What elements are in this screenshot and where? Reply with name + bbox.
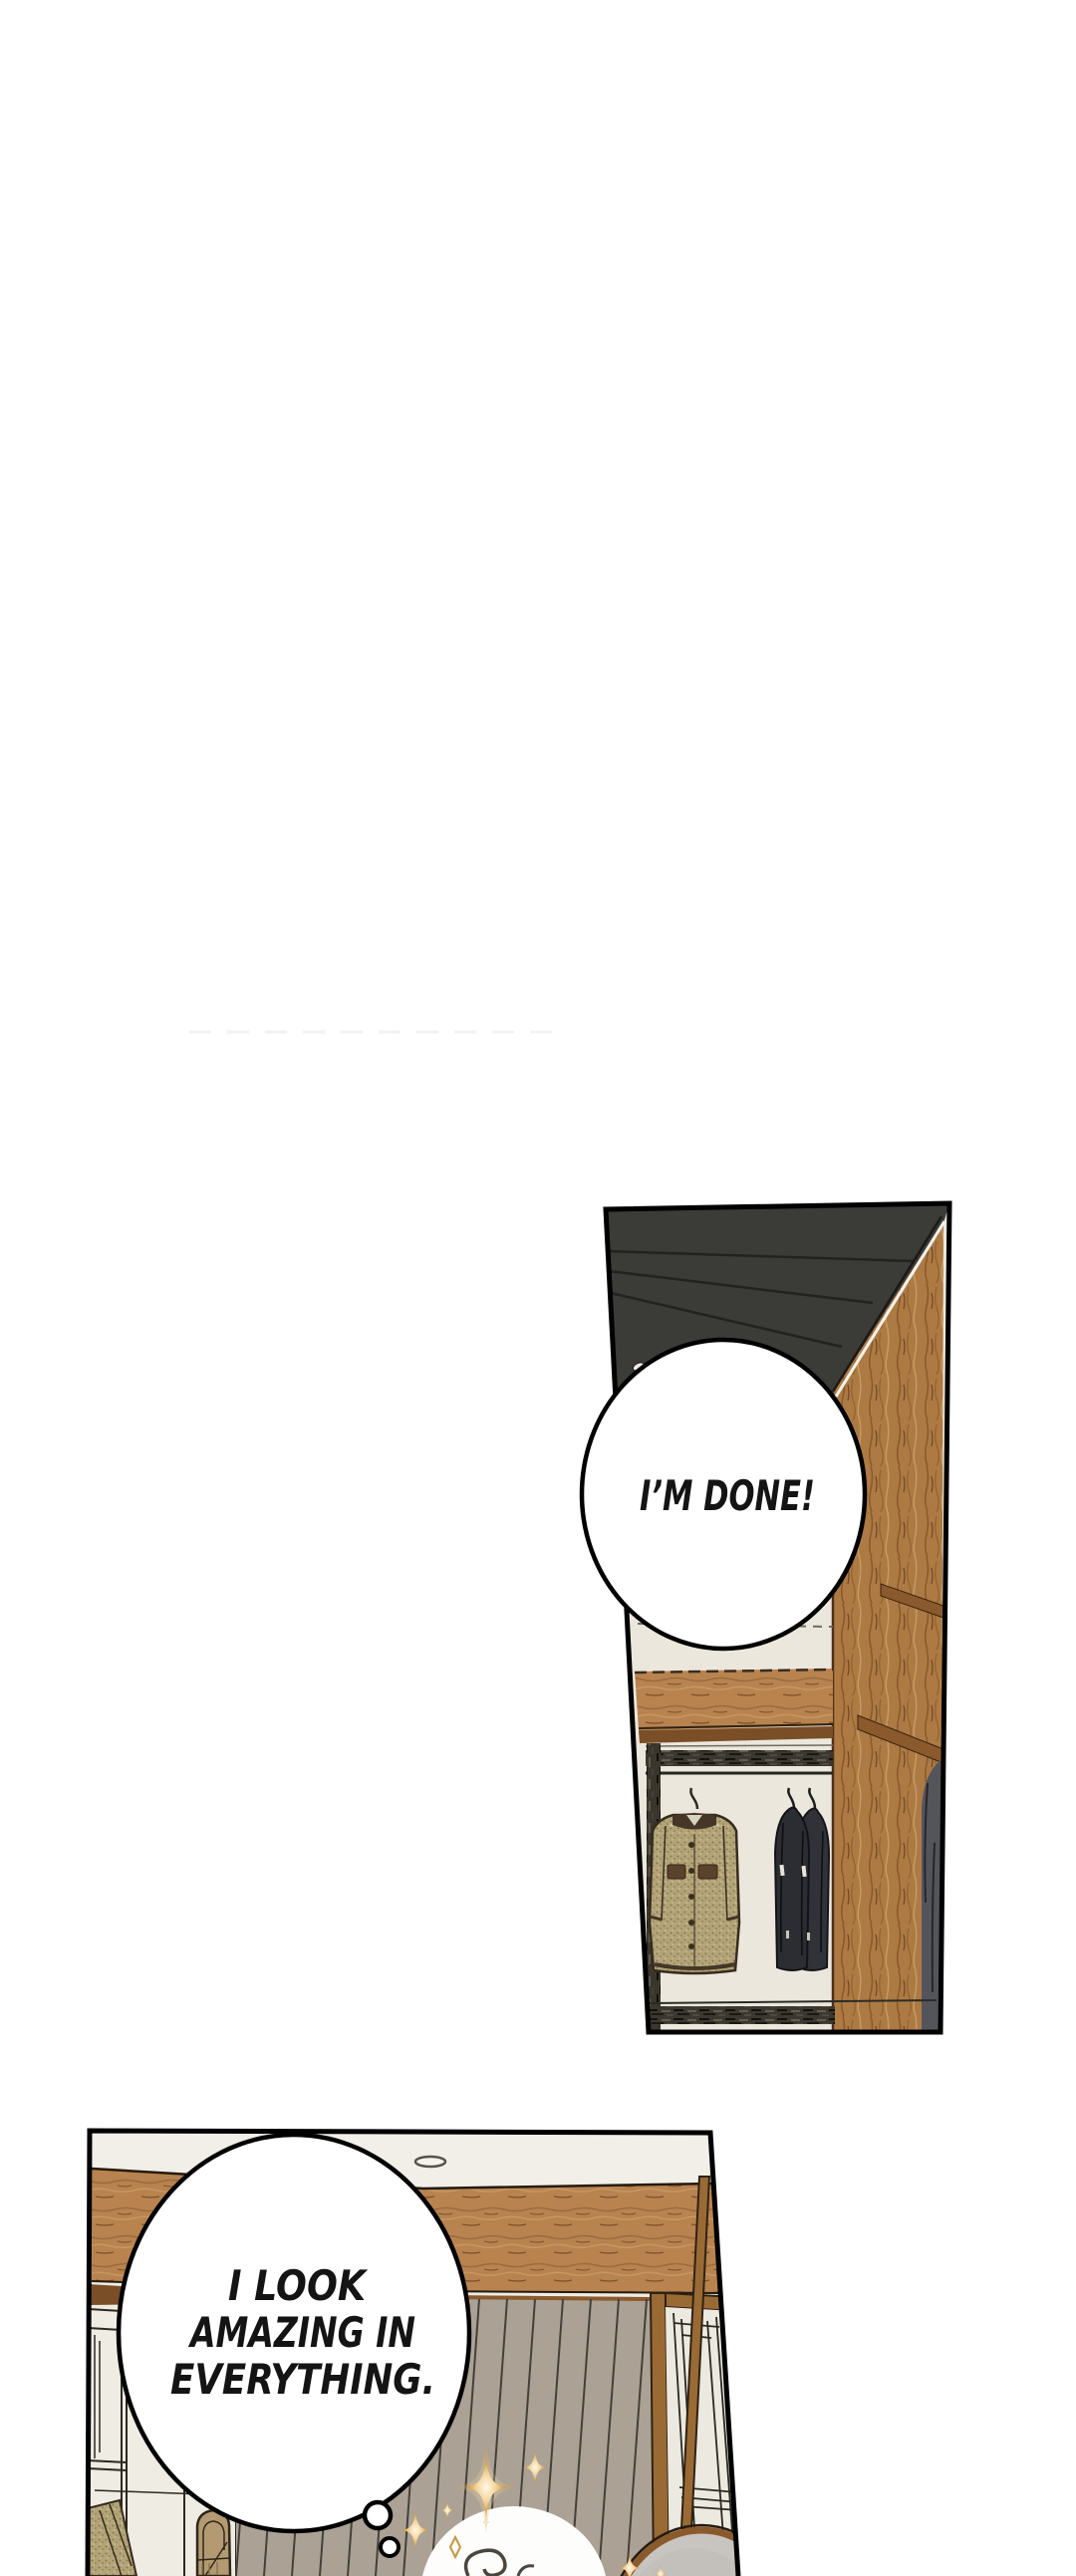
thought-trail-dot (365, 2502, 391, 2528)
thought-bubble-line-3: EVERYTHING. (170, 2355, 435, 2404)
ceiling-light-icon (415, 2157, 445, 2167)
comic-artwork: I’M DONE! (0, 0, 1076, 2576)
coat-pocket-right (698, 1865, 717, 1879)
backpack (197, 2510, 230, 2576)
wood-shelf-band (635, 1669, 833, 1730)
thought-trail-dot (381, 2538, 399, 2556)
speech-bubble-text: I’M DONE! (640, 1471, 815, 1520)
comic-page: I’M DONE! (0, 0, 1076, 2576)
suit-tag (807, 1932, 810, 1940)
suit-tag (786, 1931, 789, 1938)
coat-pocket-left (668, 1865, 685, 1879)
thought-bubble-line-1: I LOOK (228, 2261, 369, 2310)
floor-edge-band (648, 2006, 835, 2024)
speech-bubble: I’M DONE! (582, 1340, 865, 1649)
thought-bubble-line-2: AMAZING IN (188, 2308, 415, 2357)
